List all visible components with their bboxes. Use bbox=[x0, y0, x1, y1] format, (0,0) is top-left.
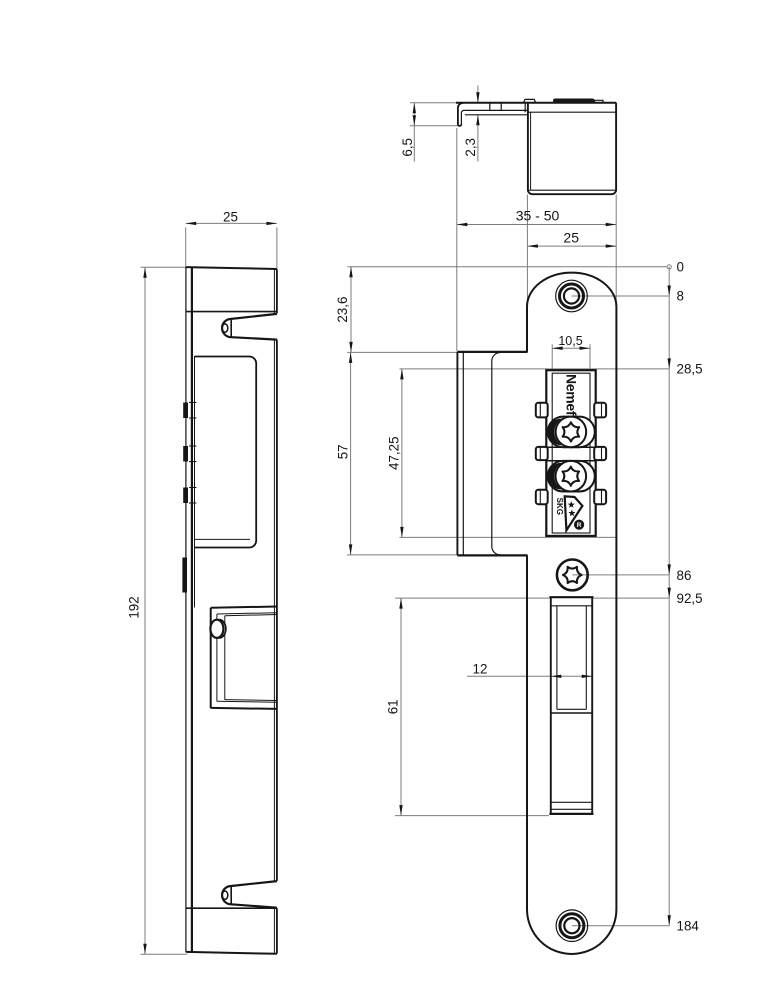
svg-text:12: 12 bbox=[473, 662, 488, 677]
svg-text:8: 8 bbox=[677, 289, 684, 304]
svg-text:25: 25 bbox=[223, 210, 238, 225]
svg-text:23,6: 23,6 bbox=[335, 297, 350, 323]
svg-text:Nemef: Nemef bbox=[563, 374, 579, 416]
svg-text:SKG: SKG bbox=[555, 498, 564, 515]
svg-text:10,5: 10,5 bbox=[558, 334, 582, 348]
svg-text:6,5: 6,5 bbox=[400, 138, 415, 157]
svg-text:92,5: 92,5 bbox=[677, 591, 703, 606]
svg-text:192: 192 bbox=[126, 596, 141, 618]
svg-text:35 - 50: 35 - 50 bbox=[516, 208, 560, 224]
svg-text:R: R bbox=[577, 522, 582, 529]
svg-text:0: 0 bbox=[677, 259, 684, 274]
svg-text:47,25: 47,25 bbox=[387, 436, 402, 470]
svg-text:2,3: 2,3 bbox=[463, 138, 478, 157]
svg-text:57: 57 bbox=[336, 444, 351, 459]
svg-text:184: 184 bbox=[677, 918, 700, 933]
svg-text:28,5: 28,5 bbox=[677, 362, 703, 377]
svg-text:25: 25 bbox=[563, 230, 579, 246]
svg-text:61: 61 bbox=[386, 699, 401, 714]
svg-text:86: 86 bbox=[677, 568, 692, 583]
